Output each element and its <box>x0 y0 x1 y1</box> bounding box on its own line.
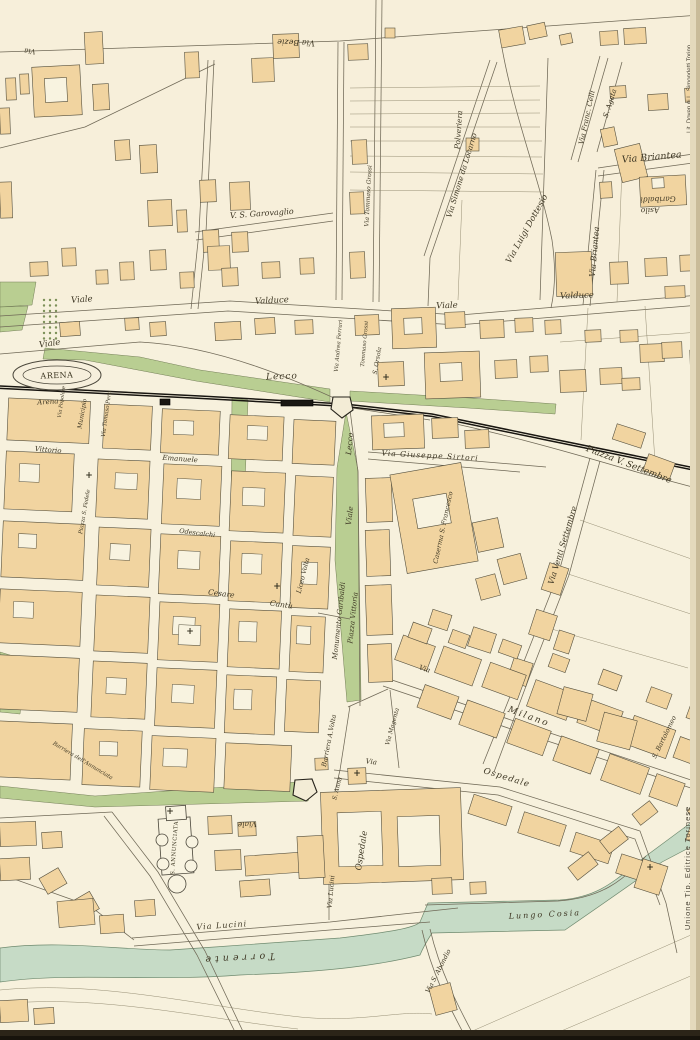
courtyard <box>99 741 118 756</box>
building <box>232 232 249 253</box>
building <box>640 344 665 363</box>
building <box>57 898 95 927</box>
tree-dot <box>43 326 45 328</box>
annunciata-chapel <box>168 875 186 893</box>
church-cross-icon: + <box>646 863 654 873</box>
building <box>559 33 573 45</box>
building <box>665 286 685 299</box>
building <box>404 318 423 335</box>
tree-dot <box>49 304 51 306</box>
street-label: Valduce <box>255 295 289 307</box>
building <box>44 77 67 102</box>
courtyard <box>13 601 34 618</box>
street-label: Lecco <box>265 371 298 382</box>
street-label: Arena <box>36 397 59 407</box>
building <box>92 84 109 111</box>
building <box>6 78 17 100</box>
courtyard <box>115 473 138 490</box>
building <box>645 258 668 277</box>
building <box>585 330 601 343</box>
building <box>0 182 13 218</box>
building <box>440 363 463 382</box>
building <box>208 816 233 835</box>
courtyard <box>177 551 200 570</box>
city-block <box>293 476 334 538</box>
building <box>610 262 629 285</box>
annunciata-chapel <box>156 834 168 846</box>
building <box>300 258 315 274</box>
church-cross-icon: + <box>85 471 93 481</box>
tree-dot <box>49 321 51 323</box>
building <box>397 815 441 866</box>
building <box>134 899 155 916</box>
city-block <box>0 589 82 647</box>
building <box>622 378 640 391</box>
building <box>20 74 30 94</box>
building <box>125 318 140 331</box>
courtyard <box>176 478 201 499</box>
building <box>200 180 217 203</box>
street-label: Asilo <box>640 206 660 216</box>
building <box>432 878 453 895</box>
tree-dot <box>55 299 57 301</box>
street-label: Viale <box>237 820 257 830</box>
building <box>348 44 369 61</box>
building <box>365 478 393 523</box>
building <box>262 262 281 279</box>
building <box>648 93 669 110</box>
courtyard <box>241 553 262 574</box>
building <box>445 312 466 329</box>
rampart-green <box>0 282 36 307</box>
tree-dot <box>55 326 57 328</box>
building <box>480 320 505 339</box>
building <box>495 360 518 379</box>
building <box>385 28 395 38</box>
building <box>530 356 549 373</box>
building <box>60 321 81 336</box>
building <box>295 320 313 335</box>
building <box>352 140 368 165</box>
city-block <box>94 595 150 653</box>
building <box>367 644 392 683</box>
courtyard <box>172 684 195 703</box>
tree-dot <box>49 299 51 301</box>
building <box>120 262 135 280</box>
building <box>515 318 533 333</box>
building <box>350 252 366 279</box>
building <box>239 879 270 897</box>
city-block <box>284 679 320 732</box>
street-label: Garibaldi <box>640 194 676 204</box>
annunciata-chapel <box>157 858 169 870</box>
page-edge-shade <box>690 0 696 1040</box>
city-block <box>292 419 336 465</box>
building <box>662 342 683 359</box>
building <box>84 32 104 65</box>
building <box>560 370 587 393</box>
building <box>114 140 130 161</box>
building <box>150 250 167 271</box>
building <box>600 31 619 46</box>
map-canvas: +++++++ Via BezieViaV. S. GarovaglioVia … <box>0 0 700 1040</box>
station-building <box>281 400 313 406</box>
building <box>208 246 231 271</box>
building <box>297 835 325 878</box>
street-label: Via <box>24 47 36 56</box>
building <box>652 178 665 189</box>
tree-dot <box>49 326 51 328</box>
courtyard <box>19 464 40 483</box>
building <box>0 108 10 134</box>
building <box>0 857 31 881</box>
building <box>180 272 195 288</box>
building <box>148 200 173 227</box>
building <box>185 52 200 78</box>
tree-dot <box>55 310 57 312</box>
courtyard <box>173 420 194 435</box>
street-label: Valduce <box>560 290 594 301</box>
tree-dot <box>55 304 57 306</box>
building <box>150 322 167 337</box>
building <box>30 262 48 277</box>
city-block <box>224 743 292 792</box>
building <box>34 1007 55 1024</box>
street-label: Viale <box>71 294 93 305</box>
page-edge-shade <box>696 0 700 1040</box>
street-label: Via Bezie <box>277 37 315 47</box>
building <box>624 27 647 44</box>
courtyard <box>18 534 37 549</box>
tree-dot <box>49 310 51 312</box>
photo-edge-bar <box>0 1036 700 1040</box>
tree-dot <box>43 321 45 323</box>
church-cross-icon: + <box>382 373 390 383</box>
building <box>365 585 393 636</box>
building <box>620 330 638 343</box>
building <box>252 58 275 83</box>
building <box>0 821 36 846</box>
courtyard <box>238 621 257 642</box>
courtyard <box>242 487 265 506</box>
tree-dot <box>55 332 57 334</box>
church-cross-icon: + <box>353 769 361 779</box>
tree-dot <box>49 332 51 334</box>
tree-dot <box>43 299 45 301</box>
courtyard <box>110 544 131 561</box>
courtyard <box>296 626 311 645</box>
city-block <box>0 655 79 713</box>
building <box>545 320 561 335</box>
tree-dot <box>43 332 45 334</box>
building <box>600 368 623 385</box>
building <box>42 831 63 848</box>
building <box>365 530 391 577</box>
annunciata-chapel <box>185 860 197 872</box>
building <box>139 145 157 174</box>
station-building <box>160 399 170 405</box>
building <box>222 268 239 287</box>
building <box>432 418 459 439</box>
annunciata-chapel <box>186 836 198 848</box>
building <box>99 914 124 934</box>
building <box>499 26 526 48</box>
tree-dot <box>55 315 57 317</box>
building <box>350 192 365 214</box>
building <box>62 248 77 266</box>
building <box>215 850 242 871</box>
tree-dot <box>43 310 45 312</box>
city-block <box>1 521 85 581</box>
building <box>0 999 29 1022</box>
street-label: ARENA <box>39 370 73 380</box>
street-label: Via <box>365 757 377 766</box>
courtyard <box>247 425 268 440</box>
building <box>177 210 188 232</box>
historical-city-map-of-como: +++++++ Via BezieViaV. S. GarovaglioVia … <box>0 0 700 1040</box>
building <box>244 852 305 876</box>
building <box>600 182 613 199</box>
tree-dot <box>49 315 51 317</box>
building <box>96 270 108 284</box>
church-cross-icon: + <box>186 627 194 637</box>
building <box>465 430 490 449</box>
courtyard <box>233 689 252 710</box>
courtyard <box>163 748 188 767</box>
building <box>215 321 242 340</box>
tree-dot <box>43 304 45 306</box>
courtyard <box>106 678 127 695</box>
church-cross-icon: + <box>166 807 174 817</box>
building <box>255 317 276 334</box>
street-label: Viale <box>436 301 458 312</box>
building <box>230 182 251 211</box>
church-cross-icon: + <box>273 582 281 592</box>
building <box>384 423 404 438</box>
building <box>470 882 486 895</box>
tree-dot <box>43 315 45 317</box>
